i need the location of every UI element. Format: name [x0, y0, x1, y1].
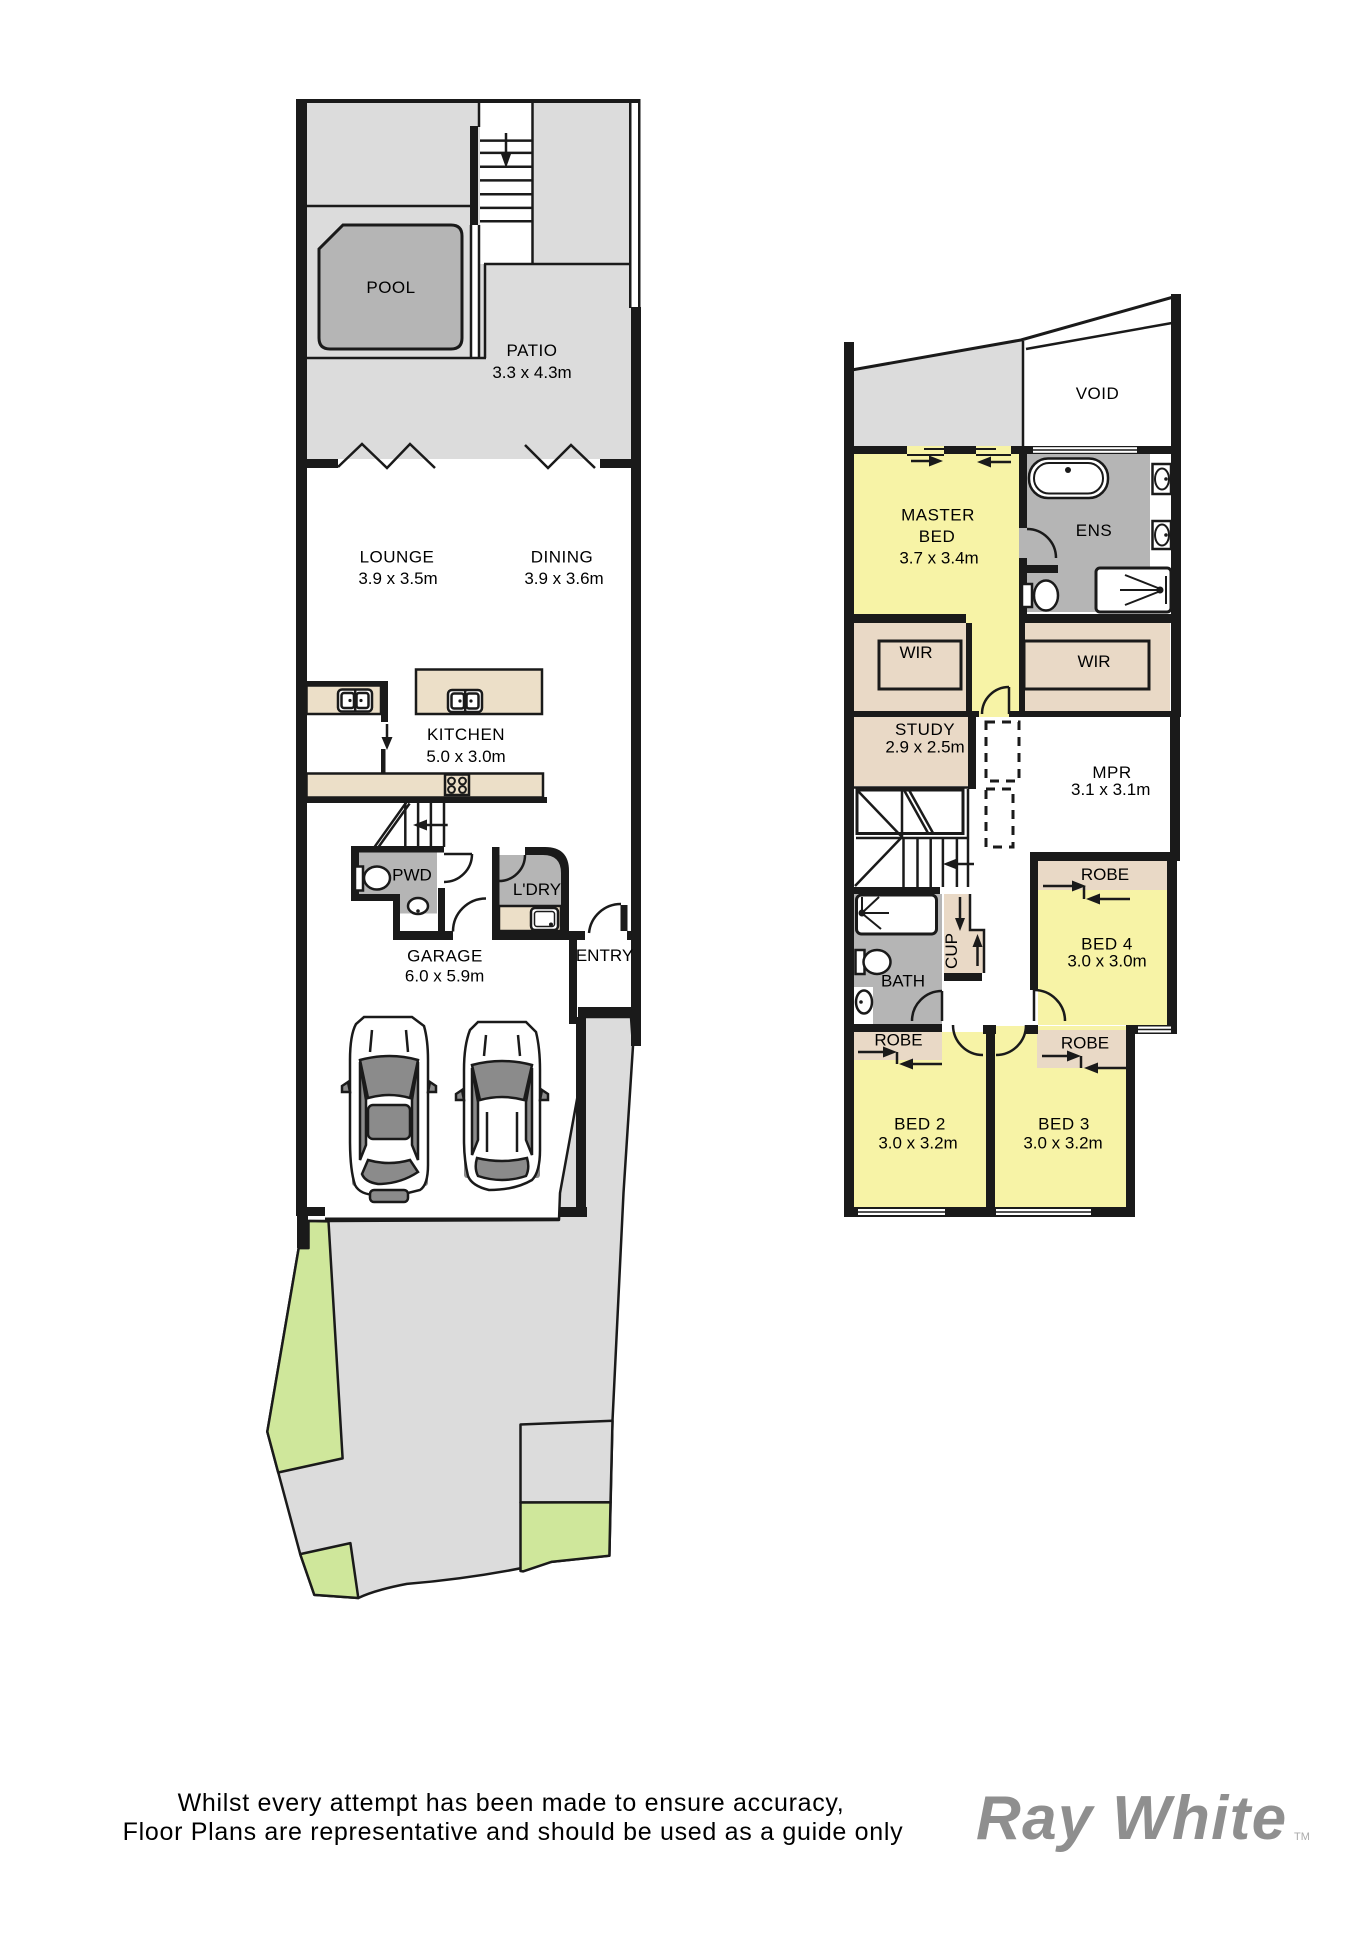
svg-text:CUP: CUP [942, 933, 961, 969]
svg-text:VOID: VOID [1076, 384, 1120, 403]
svg-text:GARAGE: GARAGE [407, 947, 483, 966]
svg-text:3.9 x 3.5m: 3.9 x 3.5m [358, 569, 437, 588]
svg-text:3.7 x 3.4m: 3.7 x 3.4m [899, 548, 978, 567]
svg-text:ENTRY: ENTRY [576, 946, 633, 965]
svg-text:POOL: POOL [366, 278, 415, 297]
svg-text:BED 2: BED 2 [894, 1115, 946, 1134]
svg-text:ENS: ENS [1076, 521, 1112, 540]
svg-text:MASTER: MASTER [901, 506, 975, 525]
svg-text:ROBE: ROBE [1081, 865, 1129, 884]
svg-text:3.0 x 3.0m: 3.0 x 3.0m [1067, 952, 1146, 971]
svg-text:3.3 x 4.3m: 3.3 x 4.3m [492, 363, 571, 382]
svg-text:6.0 x 5.9m: 6.0 x 5.9m [405, 966, 484, 985]
svg-text:LOUNGE: LOUNGE [360, 548, 435, 567]
svg-text:KITCHEN: KITCHEN [427, 725, 505, 744]
svg-text:ROBE: ROBE [1061, 1034, 1109, 1053]
svg-text:STUDY: STUDY [895, 720, 955, 739]
svg-text:5.0 x 3.0m: 5.0 x 3.0m [426, 747, 505, 766]
svg-text:BED 3: BED 3 [1038, 1115, 1090, 1134]
svg-text:L'DRY: L'DRY [513, 880, 561, 899]
svg-text:3.9 x 3.6m: 3.9 x 3.6m [524, 569, 603, 588]
svg-text:Whilst every attempt has been: Whilst every attempt has been made to en… [178, 1789, 845, 1817]
svg-text:3.0 x 3.2m: 3.0 x 3.2m [878, 1134, 957, 1153]
svg-text:3.0 x 3.2m: 3.0 x 3.2m [1023, 1134, 1102, 1153]
svg-text:2.9 x 2.5m: 2.9 x 2.5m [885, 738, 964, 757]
svg-text:Floor Plans are representative: Floor Plans are representative and shoul… [123, 1818, 904, 1846]
svg-text:PWD: PWD [392, 866, 432, 885]
svg-text:WIR: WIR [899, 643, 932, 662]
svg-text:BATH: BATH [881, 972, 925, 991]
svg-text:WIR: WIR [1077, 652, 1110, 671]
svg-text:PATIO: PATIO [507, 341, 558, 360]
svg-text:BED: BED [919, 527, 955, 546]
svg-text:TM: TM [1294, 1831, 1310, 1843]
svg-text:DINING: DINING [531, 548, 594, 567]
svg-text:ROBE: ROBE [874, 1031, 922, 1050]
svg-text:3.1 x 3.1m: 3.1 x 3.1m [1071, 780, 1150, 799]
svg-text:Ray White: Ray White [976, 1784, 1287, 1853]
